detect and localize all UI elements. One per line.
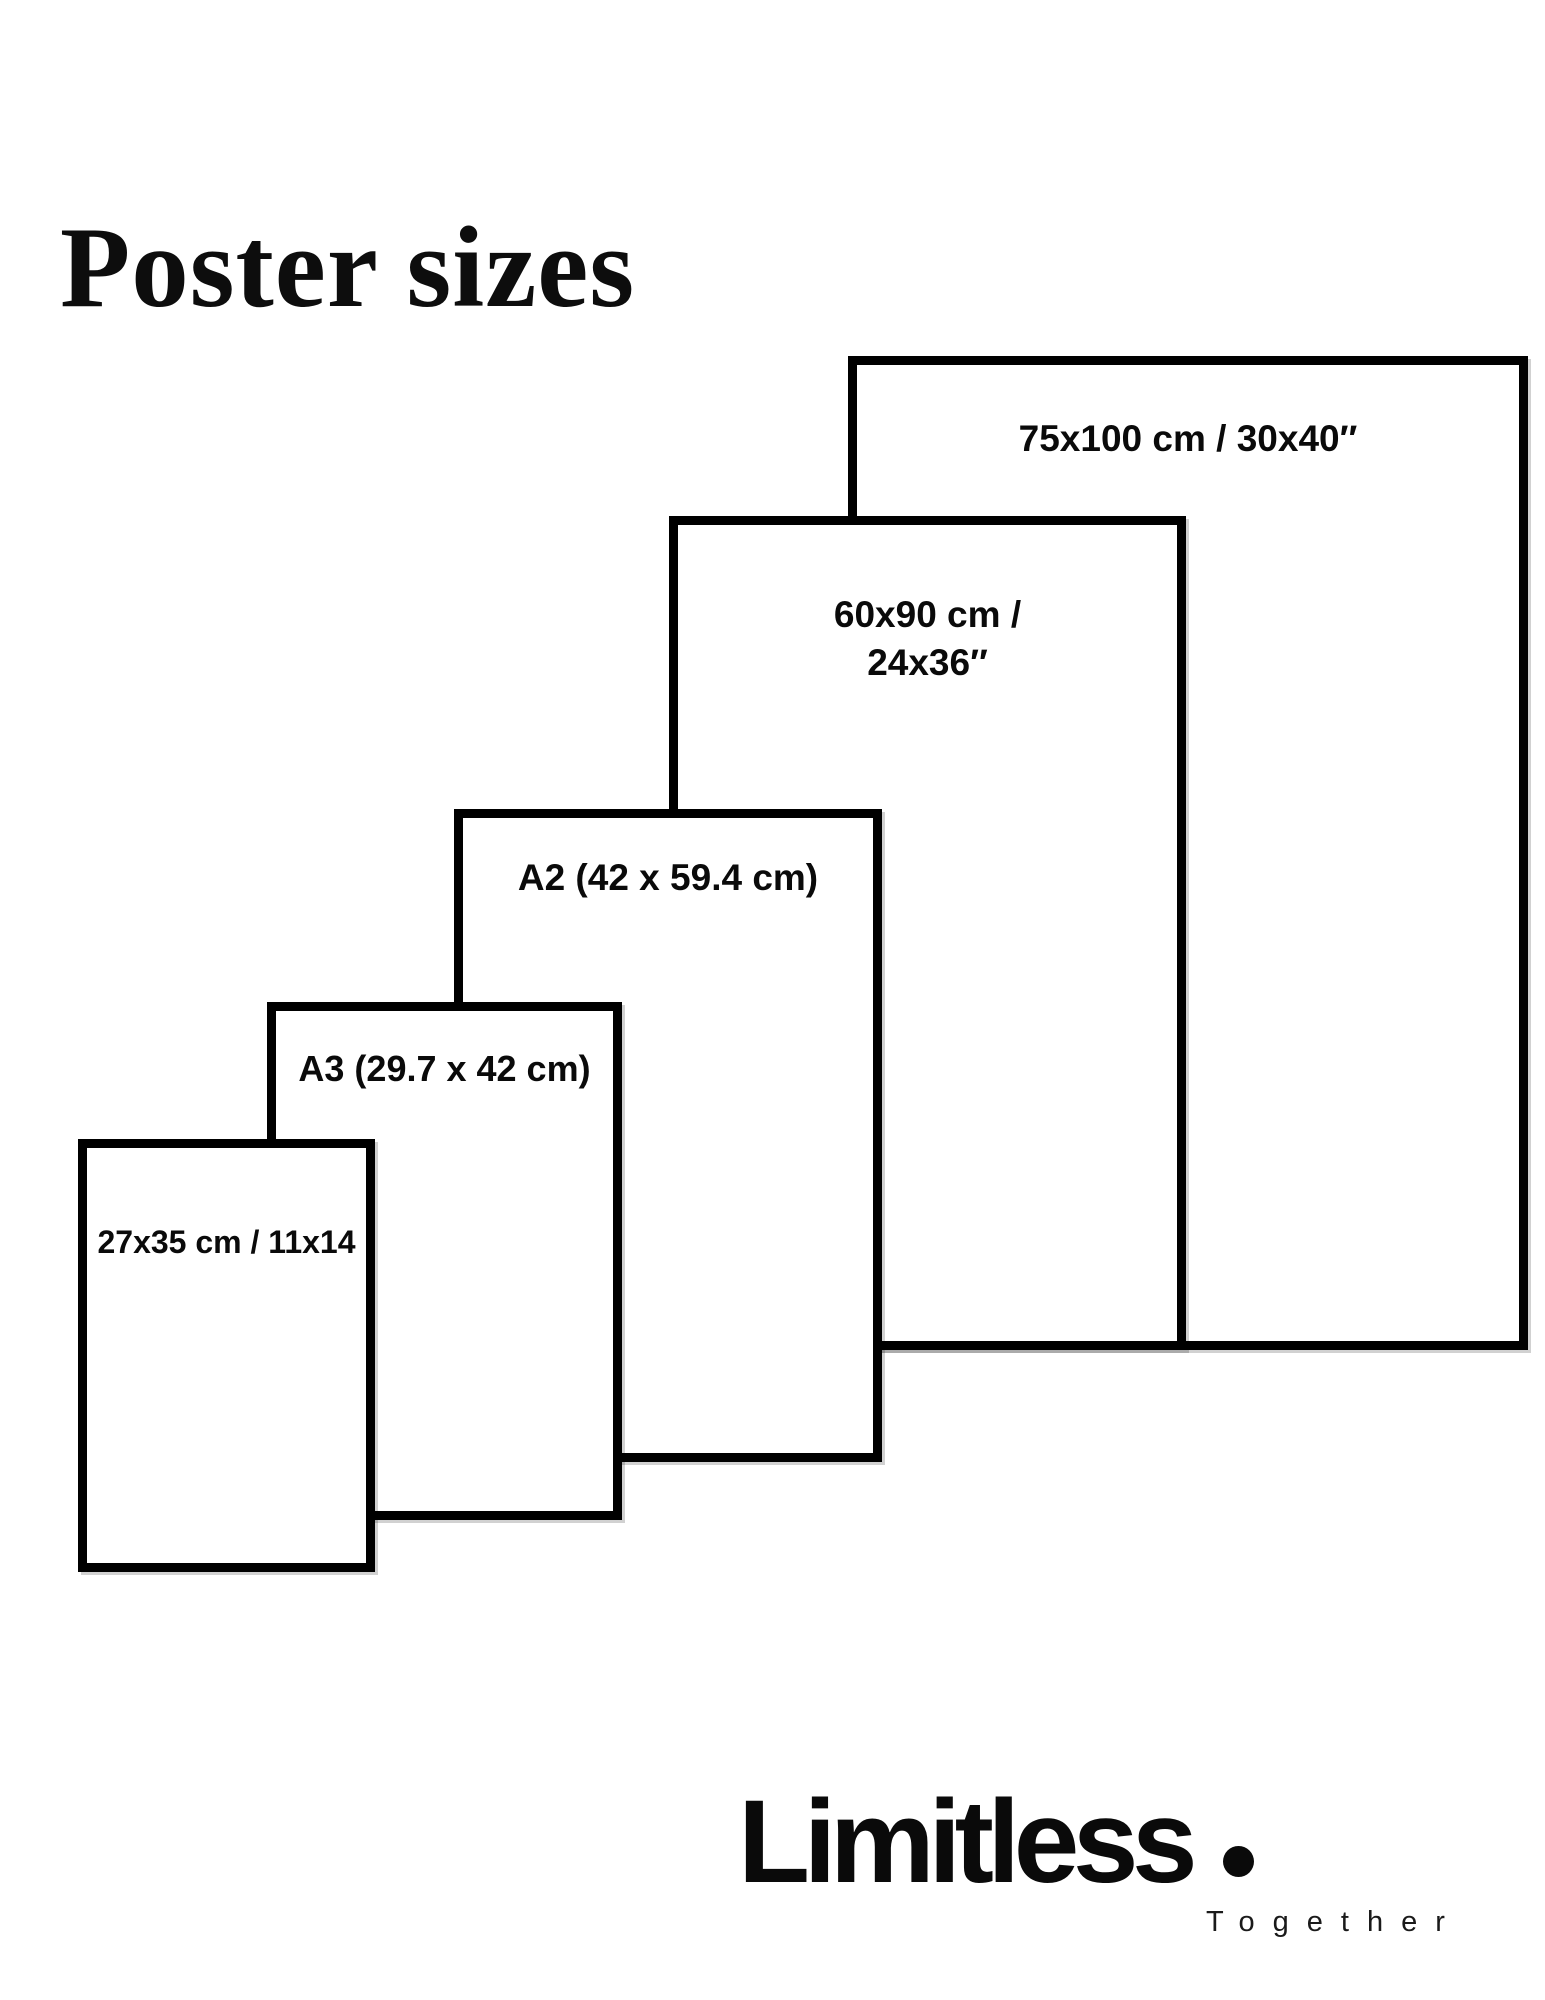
- brand-tagline: Together: [1206, 1906, 1463, 1939]
- page-title: Poster sizes: [60, 210, 635, 325]
- size-label-75x100: 75x100 cm / 30x40″: [857, 415, 1519, 463]
- poster-sizes-page: Poster sizes 75x100 cm / 30x40″ 60x90 cm…: [0, 0, 1545, 2000]
- brand-logo: Limitless: [738, 1783, 1254, 1901]
- size-label-60x90-line1: 60x90 cm /: [834, 594, 1021, 635]
- size-label-a2: A2 (42 x 59.4 cm): [463, 854, 873, 902]
- size-label-60x90-line2: 24x36″: [867, 642, 988, 683]
- size-rect-27x35: 27x35 cm / 11x14: [78, 1139, 375, 1572]
- brand-wordmark: Limitless: [738, 1783, 1191, 1901]
- size-label-27x35: 27x35 cm / 11x14: [87, 1218, 366, 1266]
- size-label-a3: A3 (29.7 x 42 cm): [276, 1045, 613, 1093]
- size-label-60x90: 60x90 cm / 24x36″: [678, 591, 1177, 687]
- brand-dot-icon: [1223, 1846, 1254, 1877]
